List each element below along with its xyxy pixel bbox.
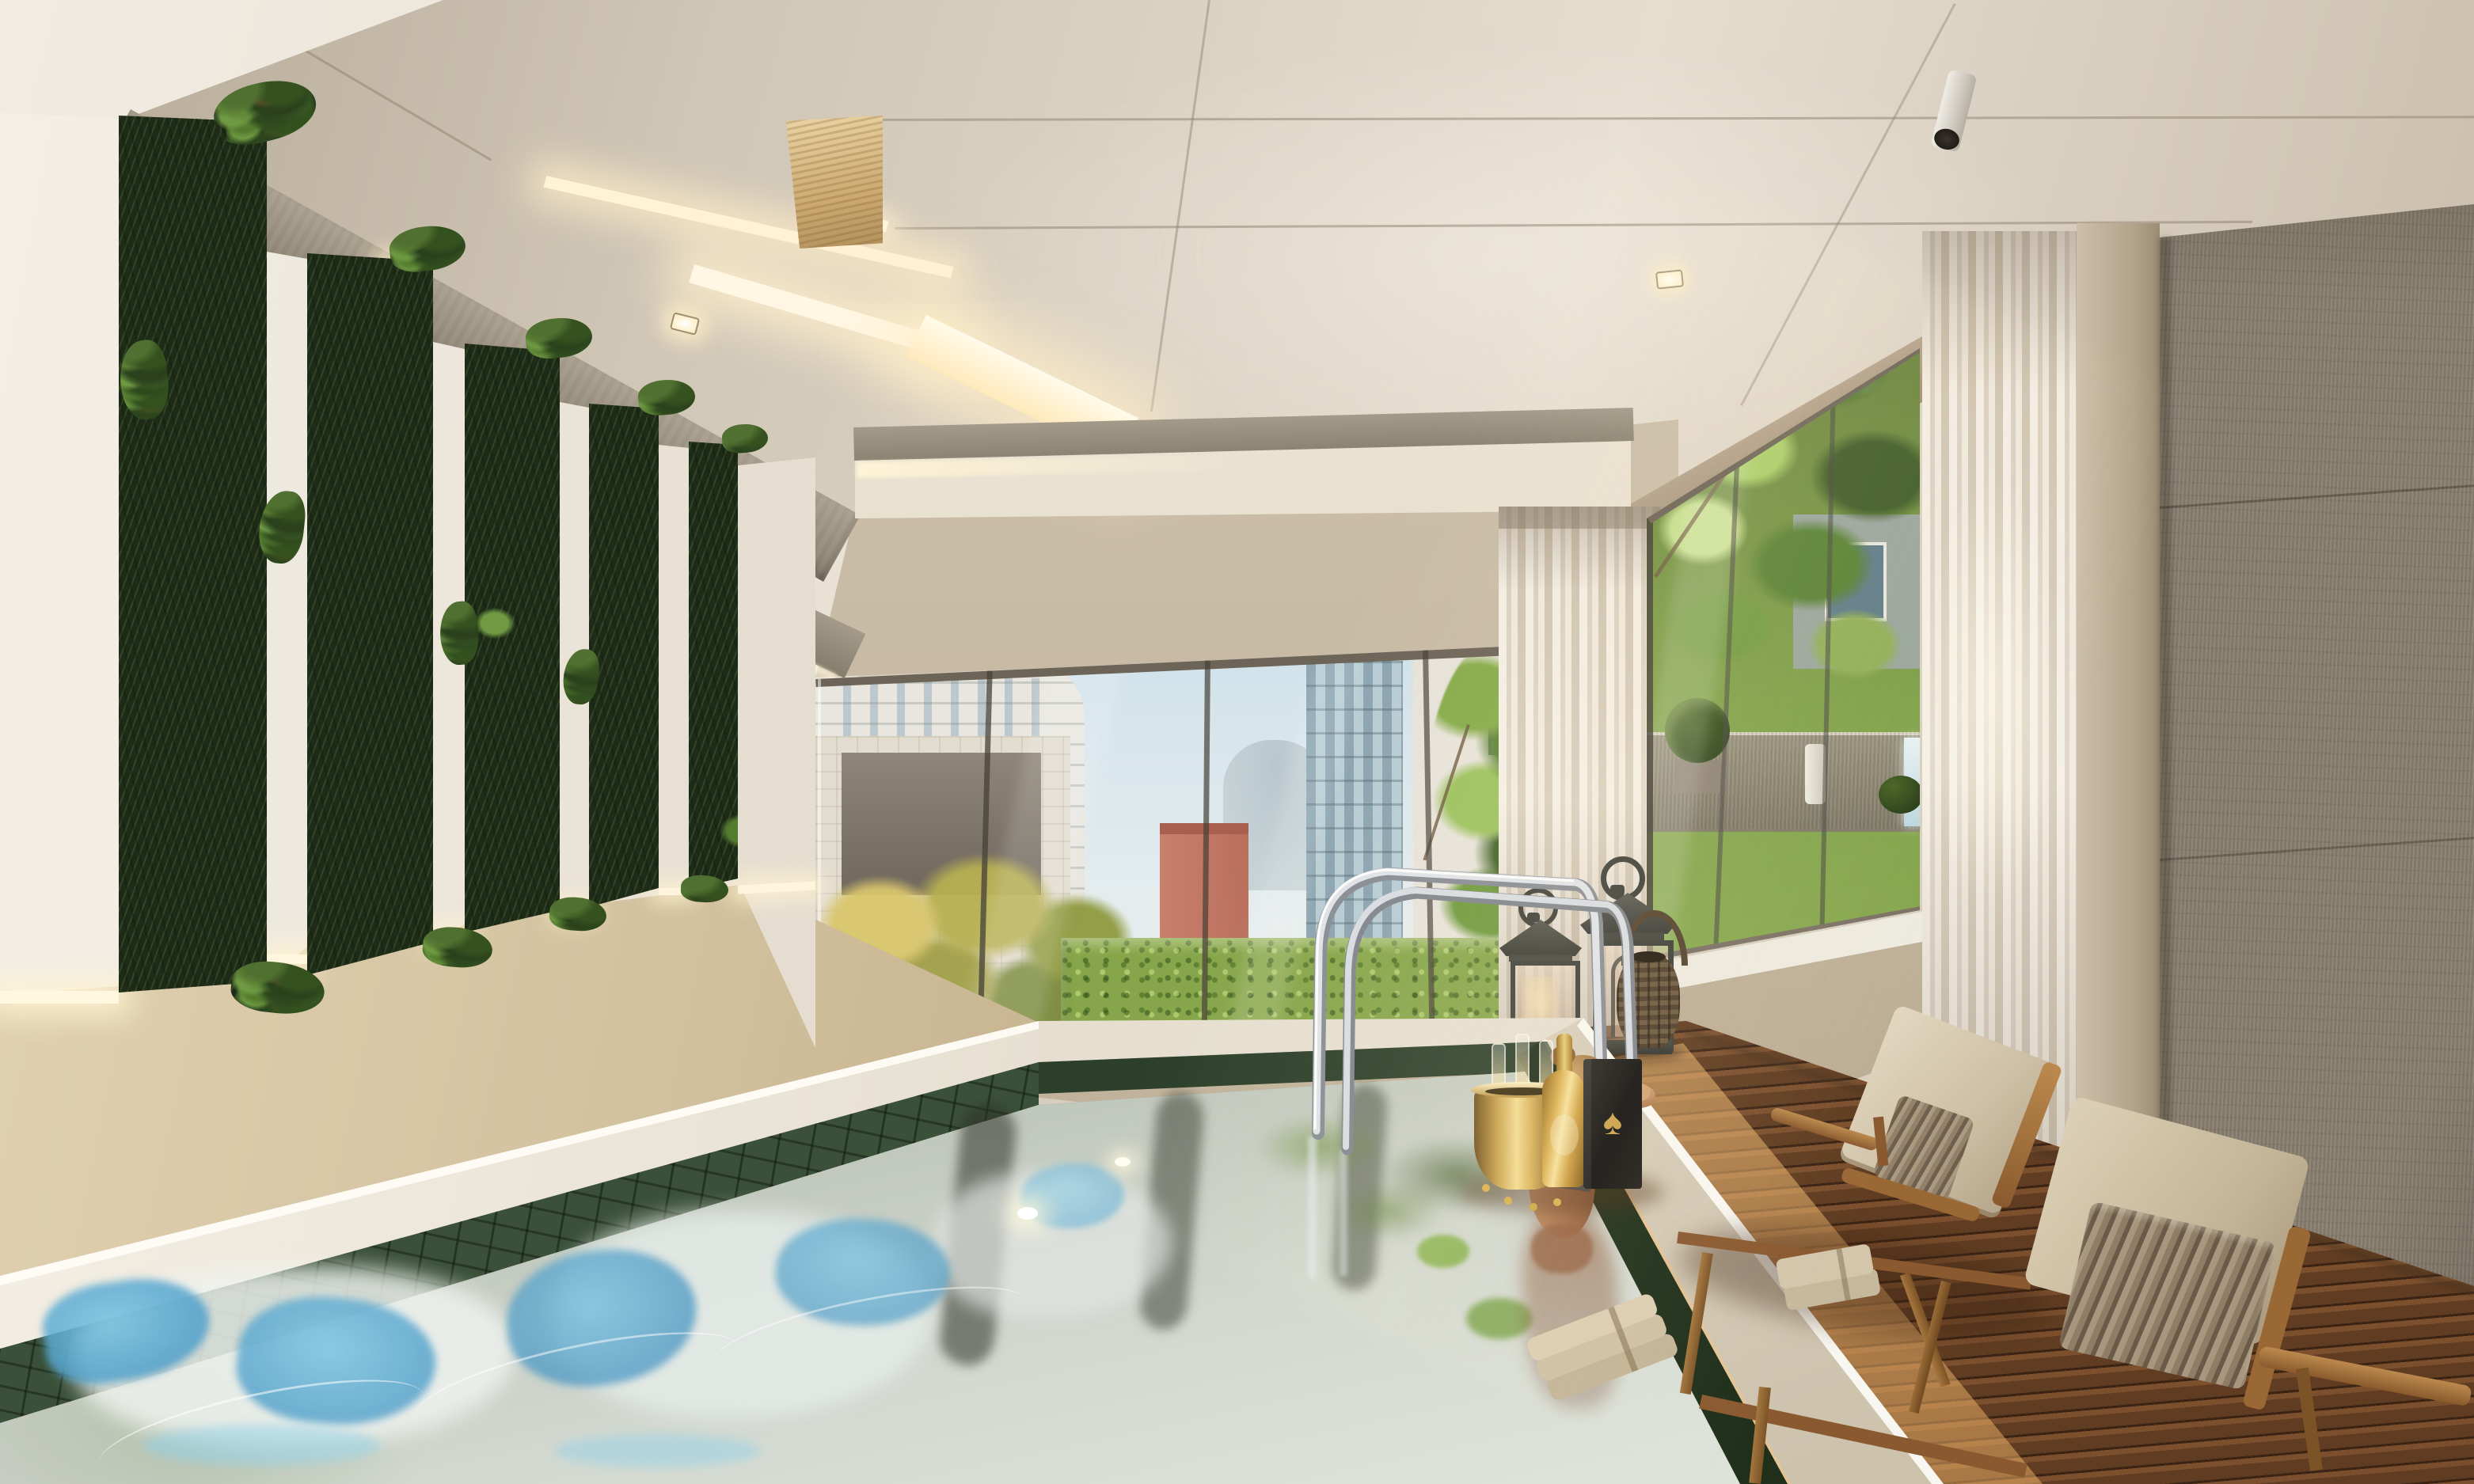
- charm: [1530, 1203, 1537, 1211]
- water-reflection-blue: [554, 1434, 760, 1467]
- spade-icon: ♠: [1583, 1100, 1642, 1143]
- woman-hips-underwater: [1531, 1224, 1593, 1273]
- topiary-ball-small: [1879, 776, 1923, 814]
- indoor-pool-render: ♠: [0, 0, 2474, 1484]
- bottle-label: [1550, 1114, 1579, 1156]
- curtain-sun-glint: [1922, 475, 2077, 950]
- water-reflection-green-bright: [1417, 1235, 1469, 1268]
- charm: [1504, 1197, 1512, 1205]
- gift-box: ♠: [1583, 1059, 1642, 1189]
- ceiling-spotlight-icon: [1655, 269, 1684, 289]
- champagne-bottle: [1542, 1070, 1585, 1187]
- water-light-sparkle: [1017, 1207, 1038, 1220]
- panel-uplight: [0, 991, 119, 1004]
- water-light-sparkle: [1115, 1157, 1131, 1167]
- charm: [1553, 1198, 1561, 1206]
- lit-travertine-texture: [786, 116, 883, 249]
- charm: [1482, 1184, 1490, 1192]
- wall-pillar: [2077, 223, 2160, 1235]
